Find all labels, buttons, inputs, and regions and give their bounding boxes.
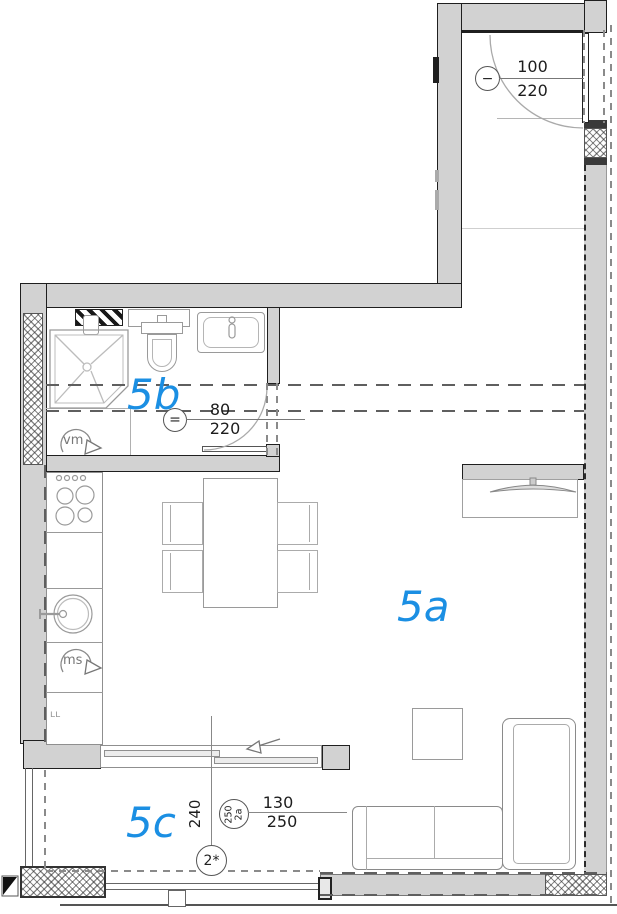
wall-bathroom-bottom bbox=[46, 455, 280, 472]
bath-dim-width: 80 bbox=[203, 402, 237, 419]
kitchen-counter bbox=[46, 472, 103, 745]
room-label-5a: 5a bbox=[397, 586, 449, 628]
hall-floor-line bbox=[462, 228, 584, 229]
shower bbox=[50, 330, 128, 408]
tv-cabinet bbox=[462, 479, 578, 518]
wall-tv-stub bbox=[462, 464, 584, 480]
dining-table bbox=[203, 478, 278, 608]
sofa-back-line bbox=[367, 858, 502, 859]
entry-niche-dash-left bbox=[583, 30, 585, 123]
chair-back bbox=[165, 553, 171, 590]
toilet-button bbox=[157, 315, 167, 323]
balcony-end-post bbox=[318, 877, 332, 900]
balcony-dim-130: 130 bbox=[258, 795, 298, 812]
entry-niche-dash-right bbox=[603, 30, 605, 123]
floor-marker: 2* bbox=[196, 845, 227, 876]
cabinet-label: ʟʟ bbox=[50, 709, 60, 720]
bottom-wall-dash-bottom bbox=[320, 894, 607, 896]
wall-bathroom-right-stub bbox=[267, 307, 280, 384]
slab-edge-bottom bbox=[60, 904, 617, 906]
sliding-door-panel-1 bbox=[104, 750, 220, 757]
chair bbox=[162, 550, 203, 593]
chair-back bbox=[309, 553, 315, 590]
corner-marker-icon bbox=[2, 876, 18, 896]
wall-right-cap-bottom bbox=[584, 158, 607, 165]
wall-bathroom-door-jamb bbox=[266, 444, 280, 457]
wall-right-top bbox=[584, 0, 607, 33]
sofa-seat bbox=[352, 806, 503, 870]
counter-divider bbox=[46, 692, 103, 693]
wall-right-main bbox=[584, 165, 607, 877]
sofa-chaise-cushion bbox=[513, 724, 570, 864]
wall-entry-left bbox=[437, 3, 462, 307]
room-label-5b: 5b bbox=[127, 374, 180, 416]
wall-joint-tick bbox=[433, 57, 439, 83]
dishwasher-label: ms bbox=[63, 653, 82, 668]
balcony-door-marker: 250 2a bbox=[219, 799, 249, 829]
chair-back bbox=[165, 505, 171, 542]
left-wall-inner-dash bbox=[44, 465, 46, 742]
counter-divider bbox=[46, 642, 103, 643]
entry-dim-width: 100 bbox=[505, 59, 560, 76]
counter-divider bbox=[46, 588, 103, 589]
counter-divider bbox=[46, 532, 103, 533]
washer-niche-line-h bbox=[46, 408, 130, 409]
entry-closet-line bbox=[497, 118, 584, 119]
entry-door-marker-text: − bbox=[482, 71, 494, 87]
sliding-door-panel-2 bbox=[214, 757, 318, 764]
wall-bottom bbox=[320, 874, 546, 896]
wall-right-window-section bbox=[584, 128, 607, 158]
toilet-bowl-inner bbox=[152, 339, 172, 367]
balcony-dim-240: 240 bbox=[188, 797, 204, 831]
floor-plan: − 100 220 = 80 220 240 250 2a 130 250 2*… bbox=[0, 0, 617, 914]
balcony-dim-250: 250 bbox=[260, 814, 304, 831]
chair-back bbox=[309, 505, 315, 542]
wall-left-window-section bbox=[23, 313, 43, 465]
room-label-5c: 5c bbox=[126, 802, 176, 844]
balcony-left-dash bbox=[44, 770, 46, 868]
entry-inner-wall-edge bbox=[462, 31, 584, 33]
washbasin-bowl bbox=[203, 317, 259, 348]
chair bbox=[277, 550, 318, 593]
coffee-table bbox=[412, 708, 463, 760]
shower-valve bbox=[83, 315, 99, 335]
right-wall-centerline bbox=[610, 25, 612, 905]
toilet-tank bbox=[141, 322, 183, 334]
balcony-slab-edge bbox=[106, 883, 320, 890]
wall-mark-b bbox=[435, 190, 439, 210]
wall-main-top bbox=[20, 283, 462, 308]
floor-marker-text: 2* bbox=[204, 853, 220, 869]
sofa-armrest-line bbox=[366, 806, 367, 870]
entry-door-marker: − bbox=[475, 66, 500, 91]
balcony-railing-left bbox=[25, 768, 33, 880]
bath-dim-height: 220 bbox=[205, 421, 245, 438]
balcony-drain-tab bbox=[168, 890, 186, 907]
wall-mark-a bbox=[435, 170, 439, 182]
balcony-bottom-dash bbox=[46, 870, 320, 872]
bath-dim-line bbox=[186, 419, 305, 420]
balcony-dim-line-v bbox=[211, 716, 212, 855]
washing-machine-label: vm bbox=[63, 433, 83, 448]
entry-dim-height: 220 bbox=[505, 83, 560, 100]
entry-dim-line bbox=[499, 78, 584, 79]
wall-bottom-window-section bbox=[545, 874, 607, 896]
chair bbox=[162, 502, 203, 545]
balcony-door-marker-stack: 250 2a bbox=[224, 805, 243, 823]
balcony-door-marker-bottom: 2a bbox=[234, 805, 244, 823]
wall-balcony-pier bbox=[322, 745, 350, 770]
chair bbox=[277, 502, 318, 545]
balcony-door-marker-top: 250 bbox=[224, 805, 234, 823]
bottom-wall-dash-top bbox=[320, 872, 607, 874]
sofa-cushion-divider bbox=[434, 806, 435, 858]
wall-top-entry bbox=[437, 3, 607, 31]
bathroom-door-leaf bbox=[202, 446, 267, 452]
